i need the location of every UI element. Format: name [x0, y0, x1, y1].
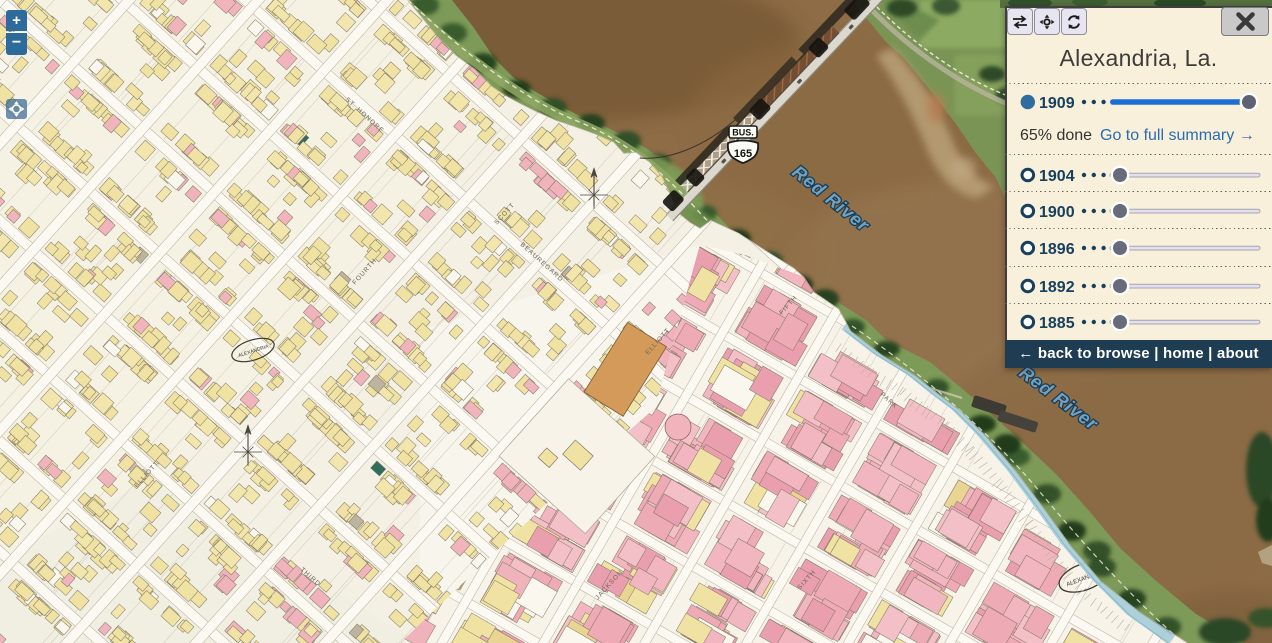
svg-text:165: 165 [734, 148, 752, 160]
svg-text:1885: 1885 [1039, 315, 1075, 332]
svg-text:1904: 1904 [1039, 168, 1075, 185]
svg-text:BUS.: BUS. [732, 128, 754, 138]
svg-text:1909: 1909 [1039, 95, 1075, 112]
svg-text:1896: 1896 [1039, 241, 1075, 258]
svg-text:1892: 1892 [1039, 279, 1075, 296]
svg-text:1900: 1900 [1039, 204, 1075, 221]
